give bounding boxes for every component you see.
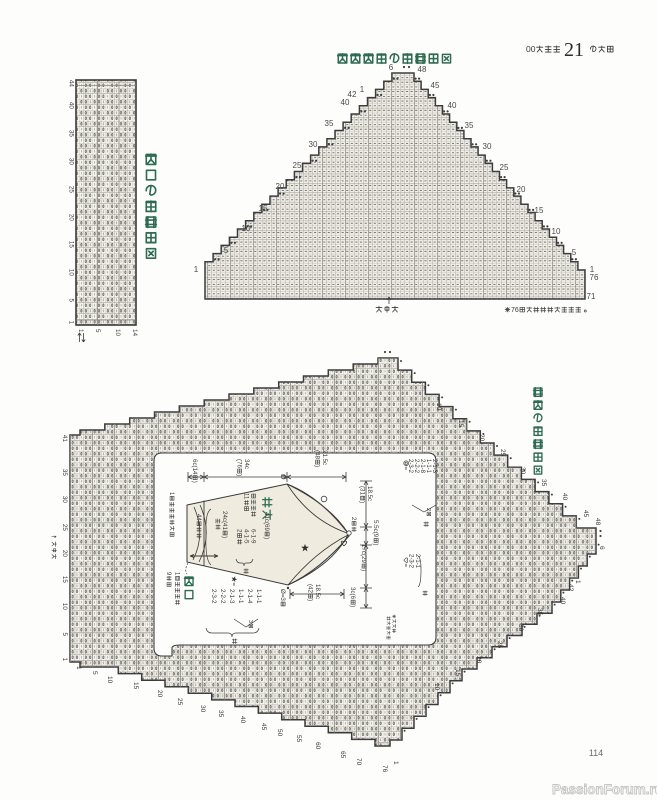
svg-text:6-1-9: 6-1-9 — [250, 529, 257, 544]
svg-text:10: 10 — [106, 676, 113, 684]
svg-text:41: 41 — [61, 435, 68, 443]
svg-text:71: 71 — [587, 292, 596, 301]
svg-text:20: 20 — [475, 656, 482, 664]
svg-text:30: 30 — [199, 705, 206, 713]
svg-text:15: 15 — [68, 241, 75, 249]
svg-text:6: 6 — [598, 546, 605, 550]
svg-text:3c(6: 3c(6 — [349, 587, 356, 600]
svg-text:35: 35 — [540, 479, 547, 487]
svg-text:20: 20 — [517, 185, 526, 194]
svg-text:20: 20 — [61, 550, 68, 558]
svg-text:70: 70 — [355, 758, 362, 766]
svg-text:2-3-2: 2-3-2 — [210, 589, 217, 604]
svg-text:76: 76 — [590, 273, 599, 282]
svg-text:35: 35 — [465, 121, 474, 130]
svg-text:11: 11 — [243, 493, 249, 500]
svg-text:(76: (76 — [236, 459, 243, 469]
svg-text:10: 10 — [114, 329, 121, 337]
svg-text:10: 10 — [435, 403, 442, 411]
svg-text:15: 15 — [132, 682, 139, 690]
svg-text:): ) — [236, 474, 243, 476]
svg-text:2-3-2: 2-3-2 — [407, 459, 413, 474]
svg-text:48: 48 — [418, 65, 427, 74]
svg-text:5: 5 — [224, 246, 229, 255]
svg-text:25: 25 — [496, 641, 503, 649]
svg-text:10: 10 — [242, 224, 251, 233]
svg-text:25: 25 — [499, 449, 506, 457]
svg-text:): ) — [314, 465, 321, 467]
svg-text:1: 1 — [194, 265, 199, 274]
svg-text:PassionForum.ru: PassionForum.ru — [552, 782, 657, 797]
svg-text:2-1-3: 2-1-3 — [228, 589, 235, 604]
svg-text:15: 15 — [61, 576, 68, 584]
svg-text:1: 1 — [75, 666, 82, 670]
svg-text:21.5c: 21.5c — [321, 450, 328, 465]
svg-text:34c: 34c — [243, 459, 250, 469]
svg-text:1: 1 — [77, 329, 84, 333]
svg-text:5.5c(9: 5.5c(9 — [372, 520, 379, 538]
svg-text:5: 5 — [61, 633, 68, 637]
svg-text:40: 40 — [561, 493, 568, 501]
svg-text:55: 55 — [295, 735, 302, 743]
svg-text:10: 10 — [433, 683, 440, 691]
svg-text:35: 35 — [536, 608, 543, 616]
svg-text:40: 40 — [448, 101, 457, 110]
svg-text:1-1-1: 1-1-1 — [255, 589, 262, 604]
svg-text:): ) — [263, 537, 270, 539]
svg-text:10: 10 — [552, 227, 561, 236]
svg-text:30: 30 — [483, 142, 492, 151]
svg-text:1: 1 — [392, 761, 399, 765]
svg-text:48: 48 — [594, 518, 601, 526]
svg-text:2-2-2: 2-2-2 — [219, 589, 226, 604]
svg-text:10: 10 — [68, 269, 75, 277]
svg-text:20: 20 — [276, 182, 285, 191]
svg-text:): ) — [359, 501, 366, 503]
svg-text:25: 25 — [61, 524, 68, 532]
svg-text:1: 1 — [68, 321, 75, 325]
svg-text:): ) — [307, 599, 314, 601]
svg-text:): ) — [360, 569, 367, 571]
svg-text:42: 42 — [348, 90, 357, 99]
svg-text:50: 50 — [276, 729, 283, 737]
svg-text:30: 30 — [61, 496, 68, 504]
svg-text:24c(41: 24c(41 — [221, 511, 228, 530]
svg-text:2-1-4: 2-1-4 — [246, 589, 253, 604]
svg-text:1: 1 — [61, 658, 68, 662]
svg-text:5: 5 — [94, 329, 101, 333]
svg-text:35: 35 — [217, 710, 224, 718]
svg-text:21: 21 — [564, 39, 584, 61]
svg-text:): ) — [221, 536, 228, 538]
svg-text:00: 00 — [526, 44, 536, 54]
svg-text:44: 44 — [68, 80, 75, 88]
svg-text:Ø=3: Ø=3 — [279, 589, 286, 601]
svg-text:15: 15 — [457, 420, 464, 428]
svg-text:35: 35 — [61, 469, 68, 477]
svg-text:6: 6 — [389, 63, 394, 72]
svg-text:): ) — [191, 481, 198, 483]
svg-text:25: 25 — [176, 698, 183, 706]
svg-text:60: 60 — [314, 742, 321, 750]
svg-text:10: 10 — [61, 603, 68, 611]
svg-text:): ) — [372, 543, 379, 545]
svg-text:5: 5 — [68, 299, 75, 303]
svg-text:35: 35 — [325, 119, 334, 128]
svg-text:15: 15 — [454, 669, 461, 677]
svg-text:20: 20 — [478, 434, 485, 442]
svg-text:(42: (42 — [307, 584, 314, 594]
svg-text:1: 1 — [360, 85, 365, 94]
svg-text:114: 114 — [589, 748, 603, 758]
svg-text:2: 2 — [236, 529, 243, 533]
svg-text:25: 25 — [68, 186, 75, 194]
svg-text:6c(14: 6c(14 — [191, 459, 198, 475]
svg-text:76: 76 — [381, 765, 388, 773]
svg-text:25: 25 — [293, 161, 302, 170]
svg-text:2: 2 — [425, 508, 431, 511]
svg-text:18.5c: 18.5c — [366, 486, 373, 501]
svg-text:76: 76 — [511, 307, 519, 314]
svg-text:14: 14 — [131, 329, 138, 337]
svg-text:35: 35 — [68, 130, 75, 138]
svg-text:40: 40 — [68, 102, 75, 110]
svg-text:30: 30 — [309, 140, 318, 149]
svg-text:45: 45 — [260, 723, 267, 731]
svg-text:15: 15 — [535, 206, 544, 215]
svg-text:17c(29: 17c(29 — [360, 544, 367, 563]
svg-text:20: 20 — [156, 690, 163, 698]
svg-text:3: 3 — [247, 620, 253, 623]
svg-text:18.5c: 18.5c — [314, 584, 321, 599]
svg-text:45: 45 — [582, 510, 589, 518]
svg-text:40: 40 — [559, 597, 566, 605]
svg-text:40: 40 — [239, 716, 246, 724]
svg-text:30: 30 — [519, 467, 526, 475]
svg-text:30: 30 — [517, 624, 524, 632]
svg-text:4-1-5: 4-1-5 — [243, 529, 250, 544]
svg-text:40: 40 — [341, 98, 350, 107]
svg-text:42: 42 — [567, 584, 574, 592]
svg-text:1: 1 — [574, 580, 581, 584]
svg-text:45: 45 — [431, 81, 440, 90]
svg-text:25: 25 — [500, 163, 509, 172]
svg-text:15: 15 — [259, 204, 268, 213]
svg-text:41c(69: 41c(69 — [263, 512, 270, 531]
svg-text:(31: (31 — [359, 486, 366, 496]
svg-text:=: = — [230, 582, 237, 586]
svg-text:2-1-1: 2-1-1 — [414, 554, 420, 569]
svg-text:5: 5 — [91, 671, 98, 675]
svg-text:5: 5 — [572, 248, 577, 257]
svg-text:30: 30 — [68, 158, 75, 166]
svg-text:1-1-1: 1-1-1 — [237, 589, 244, 604]
svg-text:2-3-2: 2-3-2 — [408, 554, 414, 569]
svg-text:44: 44 — [195, 514, 201, 521]
svg-text:65: 65 — [339, 751, 346, 759]
svg-text:): ) — [349, 605, 356, 607]
svg-text:(48: (48 — [314, 450, 321, 460]
svg-text:20: 20 — [68, 214, 75, 222]
